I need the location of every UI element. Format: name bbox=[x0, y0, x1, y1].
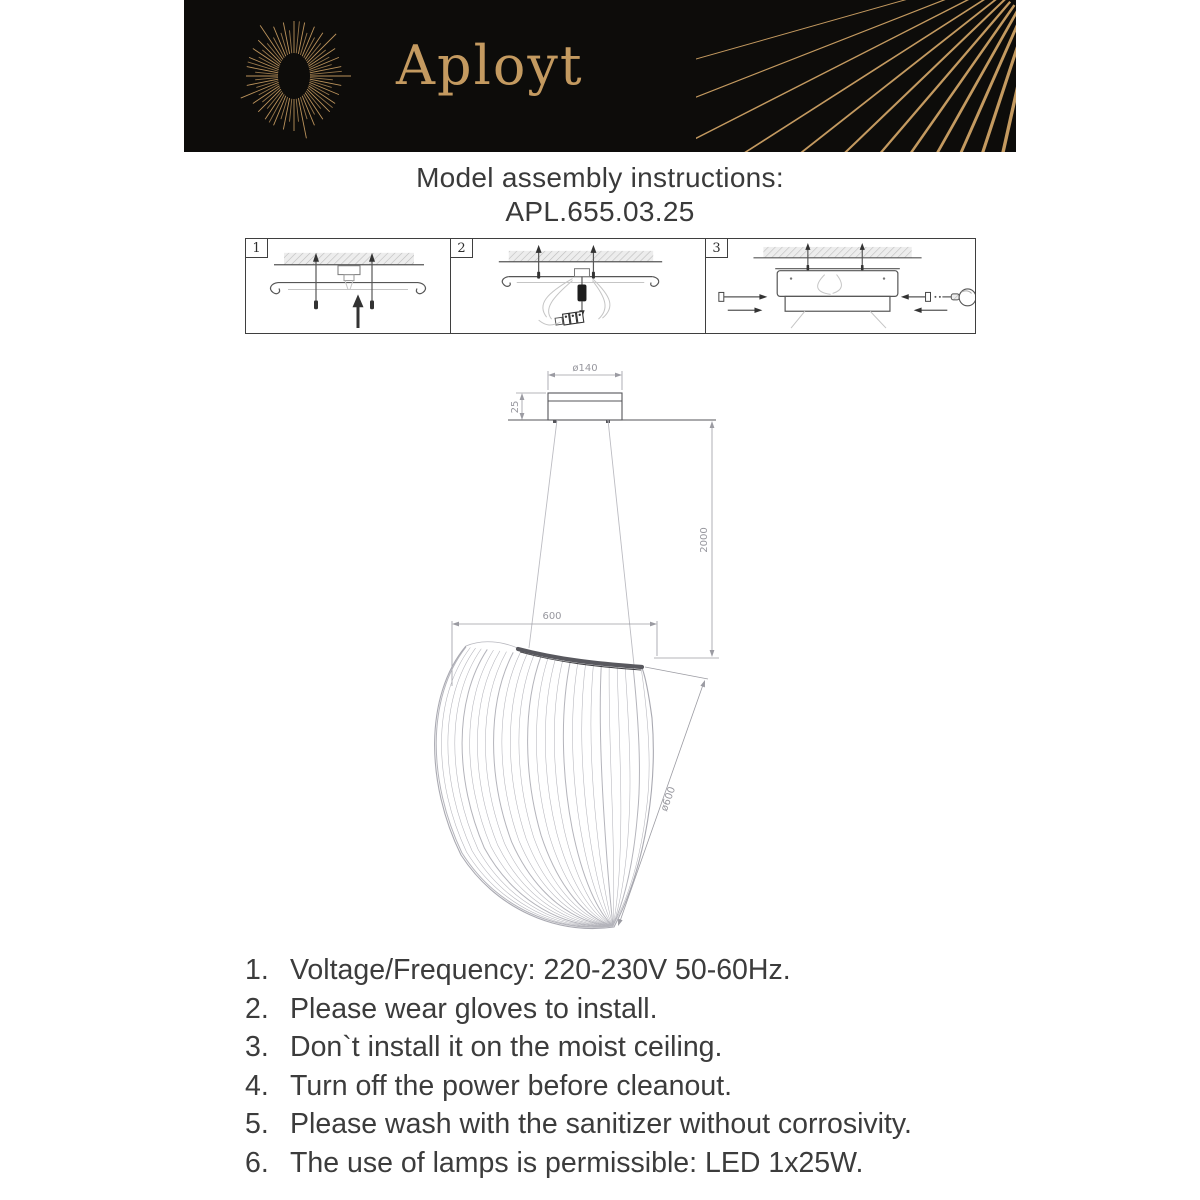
page-title: Model assembly instructions: APL.655.03.… bbox=[0, 161, 1200, 229]
step-panel-1: 1 bbox=[246, 239, 450, 333]
step-panel-3: 3 bbox=[705, 239, 975, 333]
list-item-number: 6. bbox=[245, 1144, 290, 1183]
instructions-list: 1. Voltage/Frequency: 220-230V 50-60Hz. … bbox=[245, 951, 1005, 1182]
list-item: 4. Turn off the power before cleanout. bbox=[245, 1067, 1005, 1106]
list-item-text: The use of lamps is permissible: LED 1x2… bbox=[290, 1144, 1005, 1183]
list-item: 5. Please wash with the sanitizer withou… bbox=[245, 1105, 1005, 1144]
list-item-number: 5. bbox=[245, 1105, 290, 1144]
list-item: 3. Don`t install it on the moist ceiling… bbox=[245, 1028, 1005, 1067]
dim-shade-width: 600 bbox=[542, 611, 561, 622]
dim-canopy-diameter: ø140 bbox=[572, 363, 597, 374]
step-1-diagram bbox=[246, 239, 450, 333]
list-item-text: Please wear gloves to install. bbox=[290, 990, 1005, 1029]
step-number-3: 3 bbox=[706, 239, 728, 258]
step-2-diagram bbox=[451, 239, 705, 333]
title-line2: APL.655.03.25 bbox=[0, 195, 1200, 229]
list-item: 2. Please wear gloves to install. bbox=[245, 990, 1005, 1029]
list-item-text: Voltage/Frequency: 220-230V 50-60Hz. bbox=[290, 951, 1005, 990]
sunburst-logo-icon bbox=[184, 0, 404, 152]
dim-canopy-height: 25 bbox=[510, 401, 521, 414]
list-item-number: 4. bbox=[245, 1067, 290, 1106]
rays-decoration-icon bbox=[696, 0, 1016, 152]
brand-banner: Aployt bbox=[184, 0, 1016, 152]
dim-shade-diameter: ø600 bbox=[659, 785, 678, 812]
dim-suspension-height: 2000 bbox=[699, 527, 710, 552]
step-panel-2: 2 bbox=[450, 239, 705, 333]
list-item-text: Turn off the power before cleanout. bbox=[290, 1067, 1005, 1106]
step-number-2: 2 bbox=[451, 239, 473, 258]
assembly-steps: 1 2 bbox=[245, 238, 976, 334]
brand-name: Aployt bbox=[396, 34, 584, 97]
list-item-number: 2. bbox=[245, 990, 290, 1029]
title-line1: Model assembly instructions: bbox=[0, 161, 1200, 195]
list-item: 1. Voltage/Frequency: 220-230V 50-60Hz. bbox=[245, 951, 1005, 990]
step-3-diagram bbox=[706, 239, 975, 333]
step-number-1: 1 bbox=[246, 239, 268, 258]
lamp-dimension-drawing: ø140 25 600 2000 ø600 bbox=[420, 356, 920, 950]
list-item-text: Please wash with the sanitizer without c… bbox=[290, 1105, 1005, 1144]
lamp-shade bbox=[435, 642, 654, 929]
list-item-text: Don`t install it on the moist ceiling. bbox=[290, 1028, 1005, 1067]
list-item-number: 1. bbox=[245, 951, 290, 990]
list-item-number: 3. bbox=[245, 1028, 290, 1067]
list-item: 6. The use of lamps is permissible: LED … bbox=[245, 1144, 1005, 1183]
